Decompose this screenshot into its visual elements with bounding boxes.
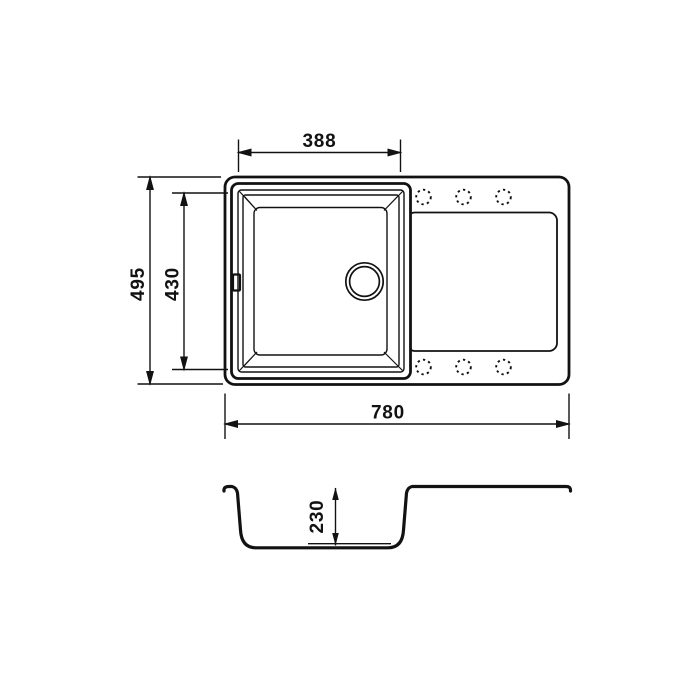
technical-drawing-canvas: 388 495 430 780 230 xyxy=(0,0,700,700)
dimension-label-230: 230 xyxy=(307,499,328,533)
arrowhead-left-icon xyxy=(225,421,238,428)
arrowhead-up-icon xyxy=(147,177,154,190)
arrowhead-down-icon xyxy=(147,372,154,385)
arrowhead-right-icon xyxy=(388,149,401,156)
arrowhead-up-icon xyxy=(332,488,339,501)
dimension-label-495: 495 xyxy=(128,267,149,301)
dimension-bowl-depth: 430 xyxy=(163,193,229,370)
sink-dimension-diagram: 388 495 430 780 230 xyxy=(0,0,700,700)
section-view: 230 xyxy=(224,487,571,548)
arrowhead-up-icon xyxy=(181,193,188,206)
dimension-bowl-width: 388 xyxy=(239,131,401,172)
dimension-label-430: 430 xyxy=(163,267,184,301)
sink-bowl xyxy=(232,184,411,379)
dimension-label-388: 388 xyxy=(302,131,336,152)
dimension-label-780: 780 xyxy=(371,403,405,424)
dimension-overall-width: 780 xyxy=(225,394,569,440)
section-profile xyxy=(224,487,571,548)
top-view xyxy=(225,177,569,385)
arrowhead-down-icon xyxy=(181,357,188,370)
arrowhead-right-icon xyxy=(557,421,570,428)
arrowhead-left-icon xyxy=(239,149,252,156)
dimension-bowl-height: 230 xyxy=(307,488,339,546)
